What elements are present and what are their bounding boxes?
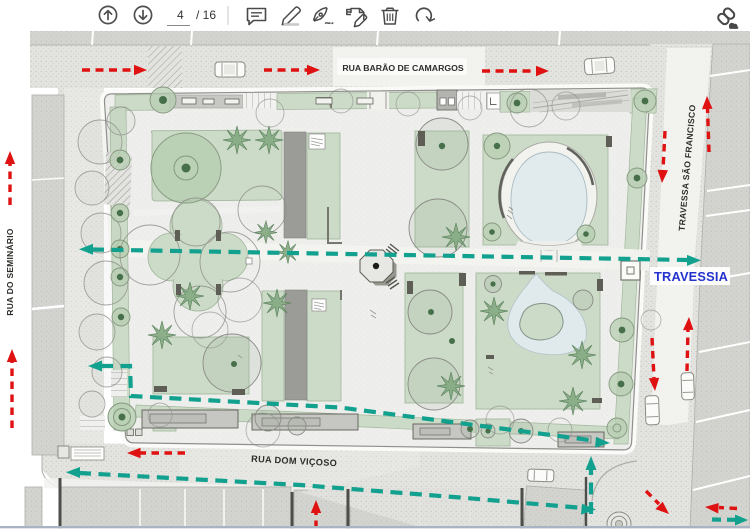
svg-text:TRAVESSIA: TRAVESSIA <box>654 269 728 284</box>
svg-text:RUA DO SEMINÁRIO: RUA DO SEMINÁRIO <box>4 228 15 315</box>
svg-text:4: 4 <box>177 8 184 22</box>
svg-text:RUA BARÃO DE CAMARGOS: RUA BARÃO DE CAMARGOS <box>342 63 464 73</box>
svg-text:/ 16: / 16 <box>196 8 216 22</box>
